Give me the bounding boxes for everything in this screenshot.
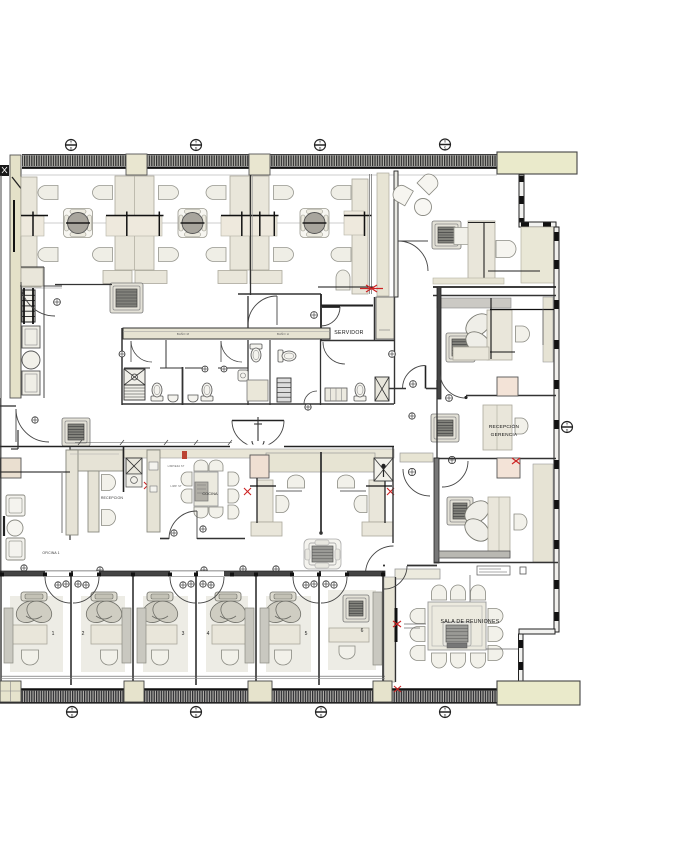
svg-text:S: S (444, 713, 447, 718)
svg-text:2: 2 (82, 631, 85, 637)
svg-text:SALA DE REUNIONES: SALA DE REUNIONES (440, 619, 499, 625)
svg-text:Y: Y (444, 139, 447, 144)
svg-text:BAÑO H: BAÑO H (277, 331, 289, 336)
svg-text:S: S (320, 713, 323, 718)
svg-text:S: S (70, 146, 73, 151)
svg-text:LIMPIEZA ST: LIMPIEZA ST (168, 464, 185, 468)
svg-text:5: 5 (305, 631, 308, 637)
svg-text:Y: Y (566, 421, 569, 426)
svg-text:LIMP. ST: LIMP. ST (170, 484, 182, 488)
svg-text:RECEPCIÓN: RECEPCIÓN (489, 423, 520, 430)
svg-text:Y: Y (70, 139, 73, 144)
svg-text:Y: Y (320, 706, 323, 711)
svg-text:Y: Y (444, 706, 447, 711)
svg-text:Y: Y (195, 139, 198, 144)
svg-text:S: S (444, 145, 447, 150)
svg-text:COCINA: COCINA (202, 492, 218, 496)
svg-text:S: S (195, 713, 198, 718)
svg-text:S: S (71, 713, 74, 718)
svg-text:1: 1 (52, 631, 55, 637)
svg-text:6: 6 (361, 628, 364, 634)
svg-text:RECEPCION: RECEPCION (101, 496, 124, 500)
svg-text:S: S (195, 146, 198, 151)
svg-text:Y: Y (195, 706, 198, 711)
svg-text:BAÑO M: BAÑO M (177, 331, 190, 336)
svg-text:3: 3 (182, 631, 185, 637)
svg-text:4: 4 (207, 631, 210, 637)
svg-text:S: S (319, 146, 322, 151)
svg-text:Y: Y (319, 139, 322, 144)
svg-text:S: S (566, 428, 569, 433)
svg-text:GERENCIA: GERENCIA (491, 432, 518, 438)
svg-text:OFICINA 1: OFICINA 1 (42, 551, 59, 555)
svg-text:SERVIDOR: SERVIDOR (334, 330, 363, 336)
svg-text:Y: Y (71, 706, 74, 711)
